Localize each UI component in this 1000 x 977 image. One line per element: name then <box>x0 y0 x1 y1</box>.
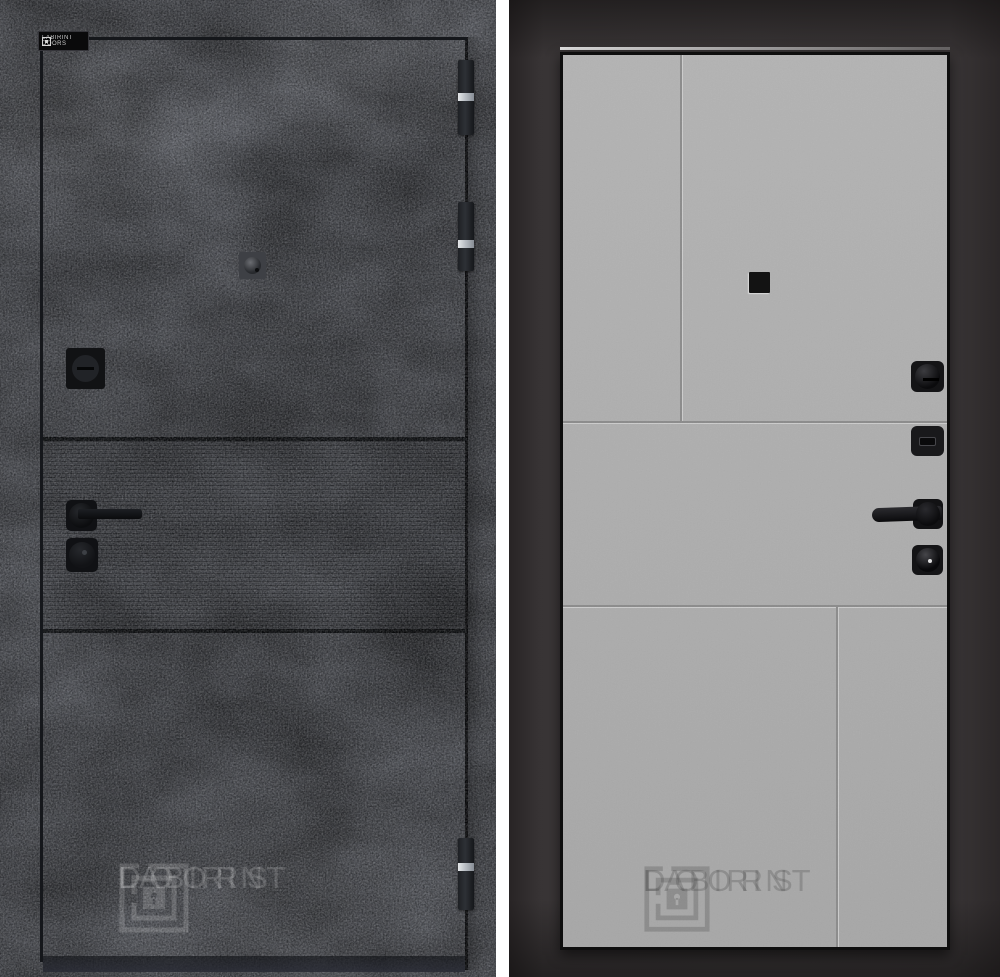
jamb-shadow <box>468 37 496 970</box>
threshold-shadow <box>43 956 465 972</box>
brand-badge-line2: DOORS <box>42 41 73 47</box>
brand-badge-text: LABIRINT DOORS <box>42 35 73 47</box>
brand-badge: LABIRINT DOORS <box>38 31 89 51</box>
peephole-icon <box>239 252 266 279</box>
product-image: LABIRINT DOORS LABIRINT DOORS <box>0 0 1000 977</box>
peephole-icon <box>749 272 770 293</box>
leaf-left-edge-line <box>40 37 43 962</box>
hinge-middle-icon <box>458 202 474 271</box>
cylinder-lock-icon <box>66 538 98 572</box>
frame-seal-highlight <box>560 47 950 50</box>
hinge-bottom-icon <box>458 838 474 910</box>
cylinder-lock-icon <box>912 545 943 575</box>
watermark-line2: DOORS <box>118 862 277 894</box>
door-exterior-photo: LABIRINT DOORS LABIRINT DOORS <box>0 0 496 977</box>
thumb-turn-icon <box>911 361 944 392</box>
ribbed-middle-band <box>43 441 466 631</box>
leaf-top-edge-line <box>40 37 467 40</box>
leaf-fine-texture <box>563 55 947 947</box>
lever-handle-icon <box>78 509 142 519</box>
door-interior-photo: LABIRINT DOORS <box>509 0 1000 977</box>
escutcheon-icon <box>911 426 944 456</box>
handle-boss <box>916 502 940 526</box>
deadbolt-turn-icon <box>66 348 105 389</box>
hinge-top-icon <box>458 60 474 135</box>
watermark-line2: DOORS <box>643 865 802 897</box>
interior-door-leaf: LABIRINT DOORS <box>560 52 950 950</box>
